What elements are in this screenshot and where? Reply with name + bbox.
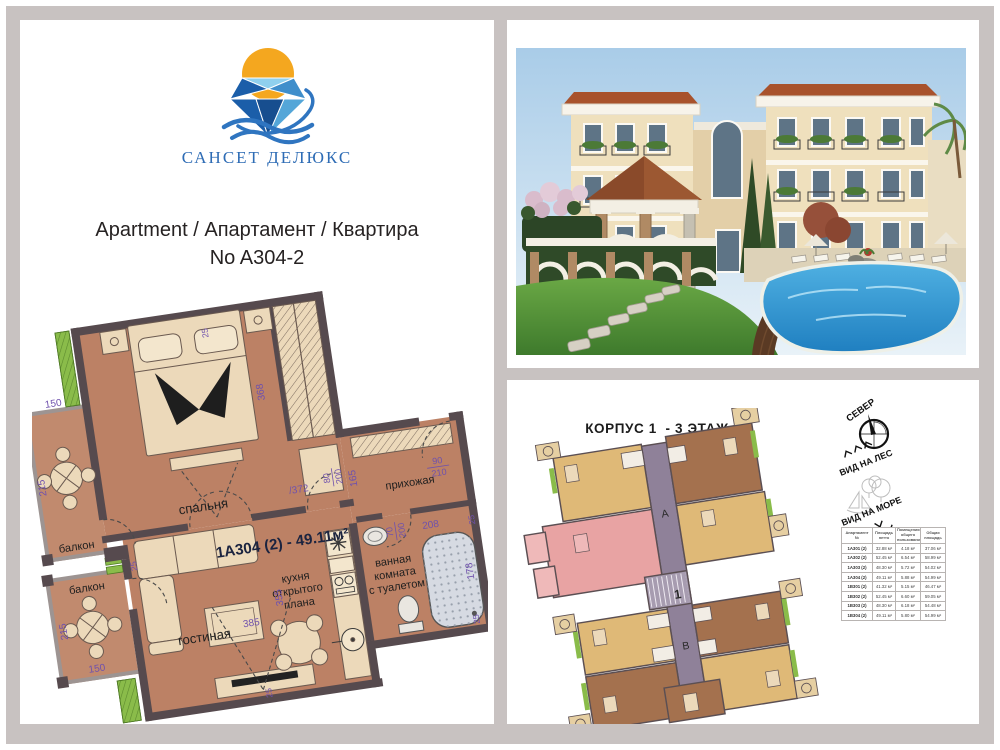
tree-sketch xyxy=(862,476,890,502)
sea-view: ВИД НА МОРЕ xyxy=(840,492,904,532)
table-row: 1B301 (2)41.32 м²5.15 м²46.47 м² xyxy=(842,582,946,592)
compass-icon: СЕВЕР xyxy=(844,396,888,448)
photo-panel xyxy=(507,20,979,368)
table-row: 1A304 (2)49.11 м²5.88 м²54.99 м² xyxy=(842,572,946,582)
highlighted-apartment xyxy=(542,509,662,597)
brand-logo xyxy=(208,42,328,146)
apartment-floorplan: 1A304 (2) - 49.11м² спальня балкон балко… xyxy=(32,290,488,724)
svg-text:25: 25 xyxy=(263,687,274,698)
heading-line2: No A304-2 xyxy=(20,244,494,272)
svg-text:80: 80 xyxy=(321,472,332,483)
svg-text:70: 70 xyxy=(384,526,395,537)
bed xyxy=(127,310,261,474)
areas-table-header: Апартамент № Площадь нетто Помещения общ… xyxy=(842,528,946,544)
svg-text:25: 25 xyxy=(199,327,210,338)
building-photo xyxy=(516,48,966,355)
siteplan-panel: КОРПУС 1 - 3 ЭТАЖ ВАРИАНТ - 2 xyxy=(507,380,979,724)
svg-text:90: 90 xyxy=(432,455,443,466)
svg-text:25: 25 xyxy=(471,613,482,624)
table-row: 1A301 (2)32.88 м²4.18 м²37.06 м² xyxy=(842,544,946,554)
svg-text:25: 25 xyxy=(128,561,139,572)
stairwell xyxy=(645,571,692,610)
brochure-page: { "brand": { "name": "САНСЕТ ДЕЛЮКС", "s… xyxy=(0,0,1000,750)
table-row: 1A302 (2)52.45 м²6.54 м²58.99 м² xyxy=(842,553,946,563)
brand-name: САНСЕТ ДЕЛЮКС xyxy=(40,148,494,168)
table-row: 1B302 (2)52.45 м²6.60 м²59.05 м² xyxy=(842,591,946,601)
pool xyxy=(762,263,962,353)
table-row: 1B303 (2)48.30 м²6.18 м²54.48 м² xyxy=(842,601,946,611)
forest-view: ВИД НА ЛЕС xyxy=(838,440,894,502)
left-panel: САНСЕТ ДЕЛЮКС Apartment / Апартамент / К… xyxy=(20,20,494,724)
table-row: 1B304 (2)49.11 м²5.80 м²54.99 м² xyxy=(842,611,946,621)
apartment-heading: Apartment / Апартамент / Квартира No A30… xyxy=(20,216,494,272)
svg-text:25: 25 xyxy=(466,514,477,525)
compass-legend: СЕВЕР ВИД НА ЛЕС ВИД НА МОРЕ xyxy=(829,392,959,532)
areas-table: Апартамент № Площадь нетто Помещения общ… xyxy=(841,527,946,621)
dining-table xyxy=(269,614,328,672)
heading-line1: Apartment / Апартамент / Квартира xyxy=(20,216,494,244)
table-row: 1A303 (2)48.30 м²5.72 м²54.02 м² xyxy=(842,563,946,573)
building-floorplan: А 1 В xyxy=(517,408,829,724)
